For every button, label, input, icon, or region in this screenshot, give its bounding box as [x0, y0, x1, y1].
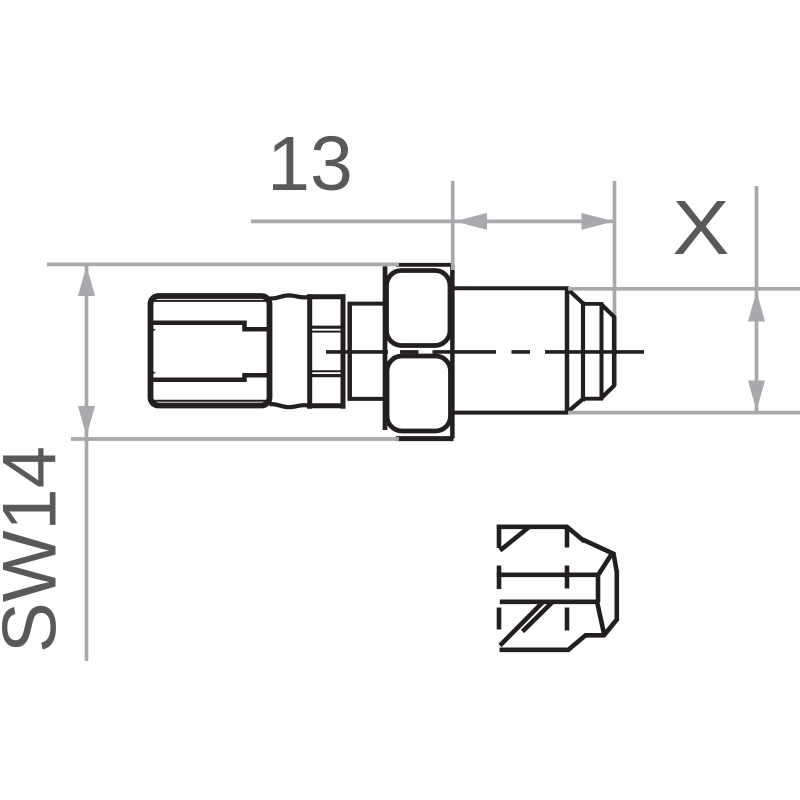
- svg-text:SW14: SW14: [0, 446, 73, 653]
- svg-text:13: 13: [267, 121, 353, 207]
- svg-text:X: X: [672, 185, 729, 271]
